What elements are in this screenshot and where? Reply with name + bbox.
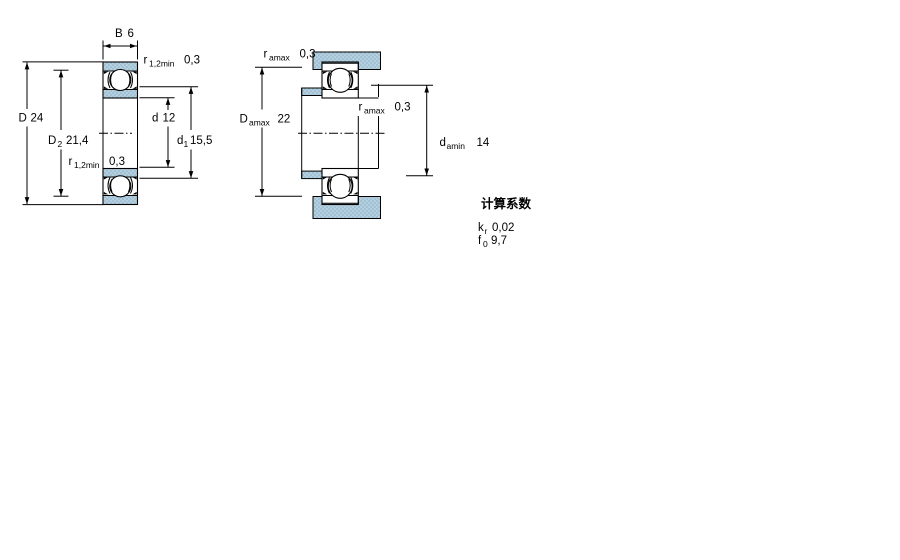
calculation-factors: 计算系数 kr0,02 f09,7 (478, 196, 532, 249)
shaft-shoulder-top (302, 88, 322, 96)
bearing-drawing-page: B6 r1,2min0,3 D24 D221,4 r1,2min0,3 (0, 0, 900, 560)
ball-top (110, 70, 131, 91)
svg-text:d12: d12 (152, 113, 175, 125)
shaft-shoulder-bottom (302, 171, 322, 179)
housing-top (313, 52, 381, 70)
dimension-d: d12 (140, 98, 176, 168)
calculation-factors-title: 计算系数 (481, 196, 532, 211)
dimension-damin: damin14 (371, 85, 490, 175)
svg-text:B6: B6 (115, 28, 134, 40)
factor-kr: kr0,02 (478, 222, 514, 236)
label-ramax-mid: ramax0,3 (359, 102, 411, 116)
ball-top (328, 68, 352, 92)
dimension-B: B6 (103, 28, 138, 60)
svg-text:D24: D24 (19, 113, 44, 125)
housing-bottom (313, 197, 381, 219)
ball-bottom (328, 174, 352, 198)
svg-text:damin14: damin14 (440, 137, 490, 151)
svg-text:d115,5: d115,5 (177, 135, 212, 149)
right-mounting-drawing: ramax0,3 Damax22 ramax0,3 damin14 (240, 49, 490, 219)
factor-f0: f09,7 (478, 235, 507, 249)
bearing-technical-drawing: B6 r1,2min0,3 D24 D221,4 r1,2min0,3 (0, 0, 900, 560)
label-r12min-bottom: r1,2min0,3 (69, 156, 126, 170)
svg-text:Damax22: Damax22 (240, 114, 291, 128)
dimension-d1: d115,5 (140, 87, 213, 179)
label-r12min-top: r1,2min0,3 (144, 55, 201, 69)
ball-bottom (110, 176, 131, 197)
left-bearing-cross-section (99, 62, 138, 205)
label-ramax-top: ramax0,3 (264, 49, 316, 63)
dimension-D2: D221,4 (48, 70, 89, 196)
svg-text:D221,4: D221,4 (48, 135, 89, 149)
dimension-Damax: Damax22 (240, 67, 303, 196)
